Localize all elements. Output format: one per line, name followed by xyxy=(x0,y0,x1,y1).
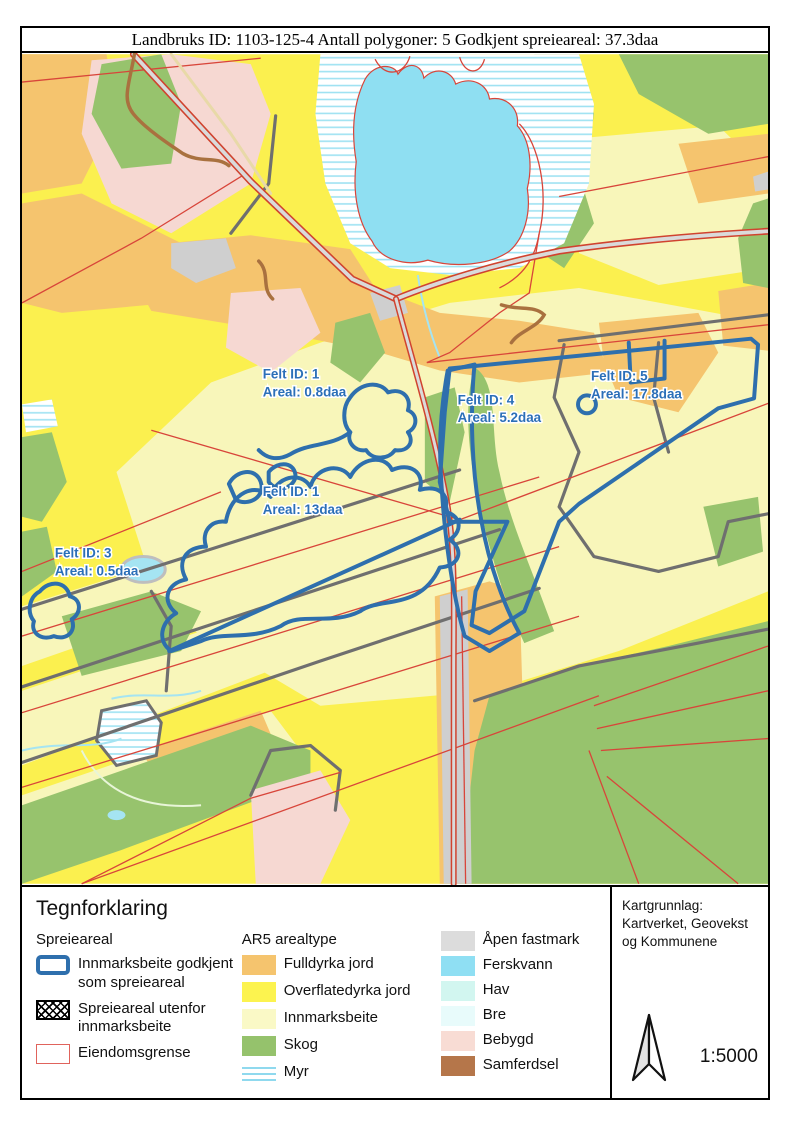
overflatedyrka-swatch-icon xyxy=(242,982,276,1002)
map-title-text: Landbruks ID: 1103-125-4 Antall polygone… xyxy=(132,30,659,50)
legend-item-label: Innmarksbeite xyxy=(284,1009,378,1028)
red-outline-swatch-icon xyxy=(36,1044,70,1064)
legend-item: Ferskvann xyxy=(441,956,596,976)
legend-item: Åpen fastmark xyxy=(441,931,596,951)
apen-fastmark-swatch-icon xyxy=(441,931,475,951)
ferskvann-swatch-icon xyxy=(441,956,475,976)
legend-item-label: Samferdsel xyxy=(483,1056,559,1075)
map-title-bar: Landbruks ID: 1103-125-4 Antall polygone… xyxy=(20,26,770,53)
legend-spreieareal-header: Spreieareal xyxy=(36,931,242,948)
legend-item: Spreieareal utenfor innmarksbeite xyxy=(36,1000,242,1038)
legend-item-label: Myr xyxy=(284,1063,309,1082)
legend-col-ar5-extra: Åpen fastmark Ferskvann Hav Bre Bebygd S… xyxy=(441,931,596,1090)
bre-swatch-icon xyxy=(441,1006,475,1026)
map-canvas: Felt ID: 1 Areal: 0.8daa Felt ID: 4 Area… xyxy=(22,53,768,885)
legend-item: Innmarksbeite godkjent som spreieareal xyxy=(36,955,242,993)
legend-col-spreieareal: Spreieareal Innmarksbeite godkjent som s… xyxy=(36,931,242,1090)
page: { "title_bar": { "text": "Landbruks ID: … xyxy=(0,0,793,1122)
legend-item-label: Hav xyxy=(483,981,510,1000)
north-arrow-icon xyxy=(628,1012,670,1084)
legend-col-ar5: AR5 arealtype Fulldyrka jord Overflatedy… xyxy=(242,931,441,1090)
scale-text: 1:5000 xyxy=(700,1046,758,1068)
felt-1-large-label-2: Areal: 13daa xyxy=(263,502,343,517)
felt-3-label-1: Felt ID: 3 xyxy=(55,546,112,561)
legend-item-label: Bebygd xyxy=(483,1031,534,1050)
felt-5-label-2: Areal: 17.8daa xyxy=(591,386,682,401)
felt-1-small-label-1: Felt ID: 1 xyxy=(263,366,320,381)
legend-item: Bre xyxy=(441,1006,596,1026)
legend-item-label: Spreieareal utenfor innmarksbeite xyxy=(78,1000,242,1038)
legend-item-label: Åpen fastmark xyxy=(483,931,580,950)
pond-small xyxy=(108,810,126,820)
legend-item: Samferdsel xyxy=(441,1056,596,1076)
map-frame: Felt ID: 1 Areal: 0.8daa Felt ID: 4 Area… xyxy=(20,51,770,887)
samferdsel-swatch-icon xyxy=(441,1056,475,1076)
innmarksbeite-swatch-icon xyxy=(242,1009,276,1029)
felt-1-large-label-1: Felt ID: 1 xyxy=(263,484,320,499)
legend-item-label: Overflatedyrka jord xyxy=(284,982,411,1001)
legend-item-label: Ferskvann xyxy=(483,956,553,975)
skog-swatch-icon xyxy=(242,1036,276,1056)
legend-item-label: Innmarksbeite godkjent som spreieareal xyxy=(78,955,242,993)
legend-item: Fulldyrka jord xyxy=(242,955,441,975)
legend-item-label: Fulldyrka jord xyxy=(284,955,374,974)
legend-ar5-header: AR5 arealtype xyxy=(242,931,441,948)
felt-4-label-1: Felt ID: 4 xyxy=(458,392,515,407)
legend-item-label: Skog xyxy=(284,1036,318,1055)
legend-title: Tegnforklaring xyxy=(36,897,596,921)
hav-swatch-icon xyxy=(441,981,475,1001)
crosshatch-swatch-icon xyxy=(36,1000,70,1020)
felt-3-label-2: Areal: 0.5daa xyxy=(55,563,139,578)
bebygd-swatch-icon xyxy=(441,1031,475,1051)
info-box: Kartgrunnlag: Kartverket, Geovekst og Ko… xyxy=(610,885,770,1100)
myr-swatch-icon xyxy=(242,1063,276,1083)
legend-item: Eiendomsgrense xyxy=(36,1044,242,1064)
felt-4-label-2: Areal: 5.2daa xyxy=(458,410,542,425)
legend-columns: Spreieareal Innmarksbeite godkjent som s… xyxy=(36,931,596,1090)
felt-5-label-1: Felt ID: 5 xyxy=(591,368,648,383)
felt-1-small-label-2: Areal: 0.8daa xyxy=(263,384,347,399)
legend-item: Bebygd xyxy=(441,1031,596,1051)
legend-item-label: Bre xyxy=(483,1006,506,1025)
legend-item: Overflatedyrka jord xyxy=(242,982,441,1002)
fulldyrka-swatch-icon xyxy=(242,955,276,975)
legend-item: Innmarksbeite xyxy=(242,1009,441,1029)
legend: Tegnforklaring Spreieareal Innmarksbeite… xyxy=(20,885,612,1100)
legend-item: Myr xyxy=(242,1063,441,1083)
blue-outline-swatch-icon xyxy=(36,955,70,975)
legend-item: Skog xyxy=(242,1036,441,1056)
attribution-text: Kartgrunnlag: Kartverket, Geovekst og Ko… xyxy=(622,897,758,952)
legend-item: Hav xyxy=(441,981,596,1001)
legend-item-label: Eiendomsgrense xyxy=(78,1044,191,1063)
